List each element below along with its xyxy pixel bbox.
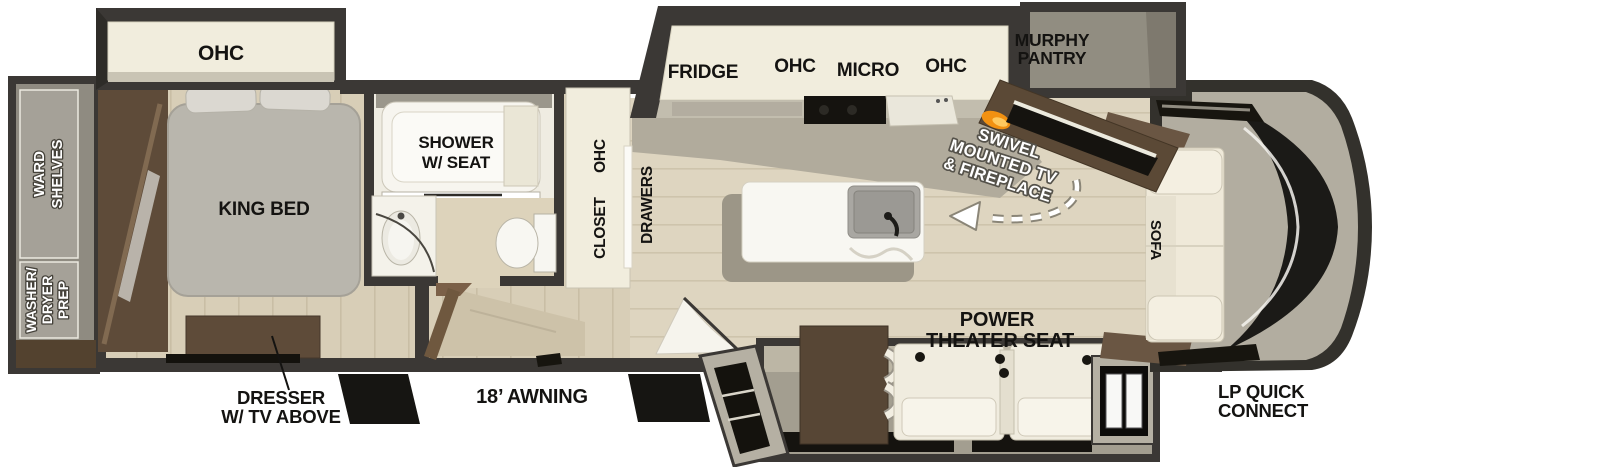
- ohc-cabinet-edge: [108, 72, 334, 82]
- micro-label: MICRO: [837, 60, 899, 81]
- cupholder-icon: [915, 352, 925, 362]
- washer-label-line1: WASHER/: [23, 267, 39, 332]
- awning-arm-icon: [628, 374, 710, 422]
- kitchen-ohc-right-label: OHC: [925, 56, 967, 77]
- bedroom-ohc-slide: OHC: [96, 8, 346, 90]
- kitchen-ohc-left-label: OHC: [774, 56, 816, 77]
- cupholder-icon: [995, 354, 1005, 364]
- dresser-label-line1: DRESSER: [237, 387, 325, 408]
- dresser-label-line2: W/ TV ABOVE: [221, 406, 340, 427]
- knob-icon: [944, 98, 948, 102]
- cupholder-icon: [999, 368, 1009, 378]
- shower-label-line2: W/ SEAT: [422, 153, 491, 172]
- sofa-armrest: [1148, 296, 1222, 340]
- lp-label-line1: LP QUICK: [1218, 381, 1305, 402]
- rear-cap: WARD SHELVES WASHER/ DRYER PREP: [8, 76, 100, 374]
- washer-label-line3: PREP: [55, 281, 71, 319]
- pantry-shade: [1146, 12, 1176, 88]
- burner-icon: [847, 105, 857, 115]
- washer-label-line2: DRYER: [39, 276, 55, 325]
- wall: [20, 358, 762, 372]
- bathroom: SHOWER W/ SEAT: [364, 84, 564, 288]
- floorplan-svg: WARD SHELVES WASHER/ DRYER PREP KING BED…: [0, 0, 1600, 467]
- closet-ohc-label: OHC: [592, 139, 609, 173]
- closet-label: CLOSET: [592, 196, 609, 258]
- shower-seat: [504, 106, 538, 186]
- window-pane: [1106, 374, 1122, 428]
- sink-basin: [854, 191, 914, 233]
- closet-handle: [624, 146, 632, 268]
- table: [800, 326, 888, 444]
- sofa-label: SOFA: [1147, 220, 1164, 260]
- floorplan-canvas: WARD SHELVES WASHER/ DRYER PREP KING BED…: [0, 0, 1600, 467]
- awning-arm-icon: [338, 374, 420, 424]
- theater-label-line1: POWER: [960, 309, 1035, 331]
- king-bed-label: KING BED: [218, 199, 309, 220]
- slide-wall-shade: [96, 8, 108, 90]
- burner-icon: [819, 105, 829, 115]
- dresser: [186, 316, 320, 358]
- murphy-pantry-slide: MURPHY PANTRY: [1015, 2, 1186, 98]
- toilet-icon: [496, 218, 538, 268]
- kitchen-slide: FRIDGE OHC MICRO OHC: [630, 6, 1022, 126]
- window-pane: [1126, 374, 1142, 428]
- kitchen-island: [722, 182, 924, 282]
- murphy-pantry-label-line2: PANTRY: [1018, 48, 1087, 68]
- seat-cushion: [902, 398, 996, 436]
- murphy-pantry-label-line1: MURPHY: [1015, 30, 1090, 50]
- cupholder-icon: [1082, 355, 1092, 365]
- ward-label-line2: SHELVES: [49, 140, 66, 209]
- rear-cabinet: [16, 340, 96, 368]
- cooktop-icon: [804, 96, 886, 124]
- knob-icon: [936, 99, 940, 103]
- shower-label-line1: SHOWER: [418, 133, 493, 152]
- faucet-icon: [398, 213, 405, 220]
- lp-label-line2: CONNECT: [1218, 400, 1309, 421]
- awning-label: 18’ AWNING: [476, 386, 588, 408]
- theater-label-line2: THEATER SEAT: [926, 330, 1074, 352]
- drawers-label: DRAWERS: [639, 166, 656, 244]
- bedroom-ohc-label: OHC: [198, 42, 244, 65]
- ward-label-line1: WARD: [31, 151, 48, 197]
- counter-shadow: [672, 102, 802, 116]
- fridge-label: FRIDGE: [668, 62, 739, 83]
